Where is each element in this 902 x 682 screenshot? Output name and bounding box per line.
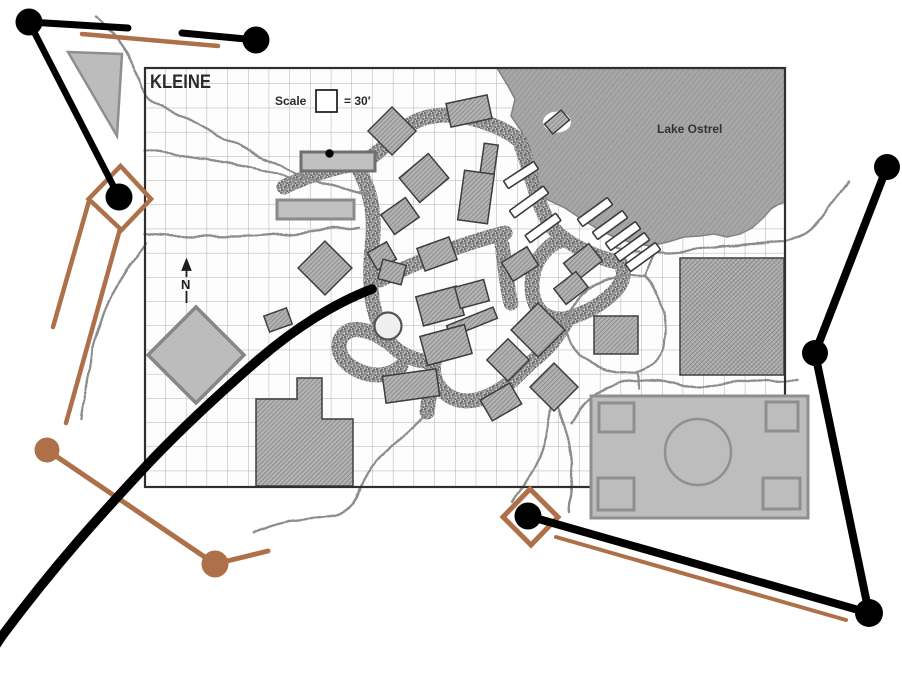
svg-text:Lake Ostrel: Lake Ostrel [657, 122, 722, 136]
svg-text:N: N [181, 277, 190, 292]
svg-text:= 30′: = 30′ [344, 94, 371, 108]
svg-text:KLEINE: KLEINE [150, 72, 211, 93]
svg-text:Scale: Scale [275, 94, 307, 108]
